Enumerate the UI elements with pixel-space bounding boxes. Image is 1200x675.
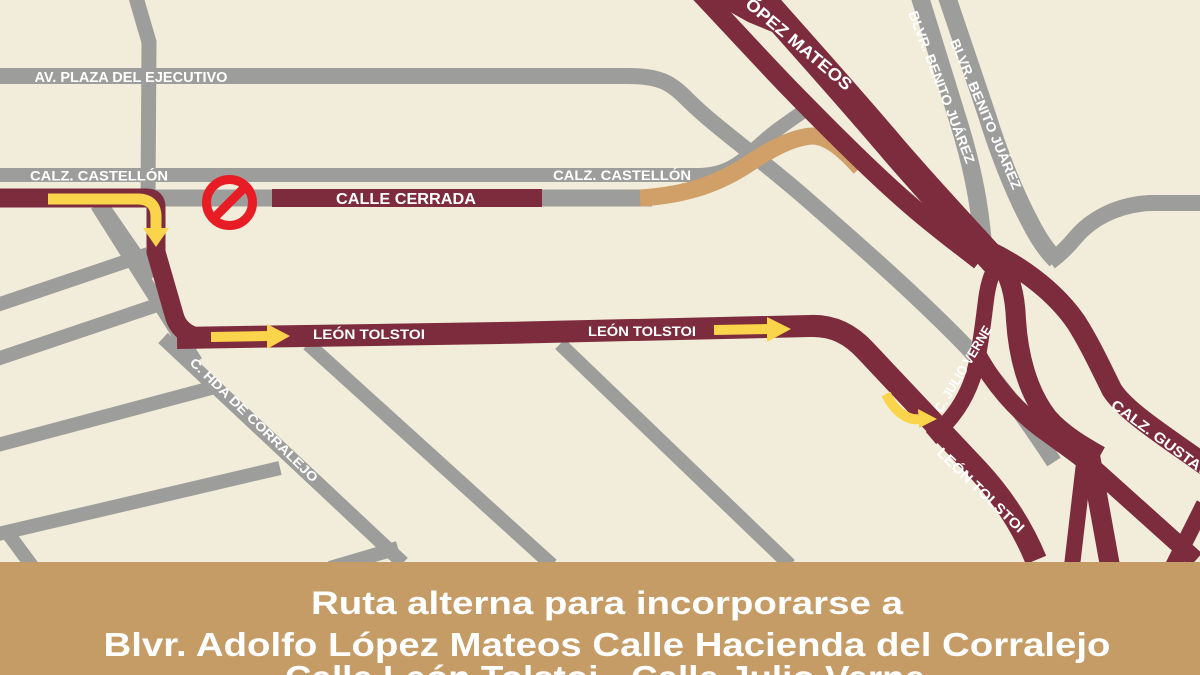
svg-text:Ruta alterna para incorporarse: Ruta alterna para incorporarse a	[311, 585, 904, 621]
svg-text:Calle León Tolstoi - Calle Jul: Calle León Tolstoi - Calle Julio Verne	[285, 660, 925, 675]
svg-text:AV. PLAZA DEL EJECUTIVO: AV. PLAZA DEL EJECUTIVO	[35, 70, 228, 86]
svg-text:LEÓN TOLSTOI: LEÓN TOLSTOI	[313, 325, 425, 342]
svg-text:CALLE CERRADA: CALLE CERRADA	[336, 191, 476, 208]
svg-text:LEÓN TOLSTOI: LEÓN TOLSTOI	[588, 322, 696, 339]
svg-text:Blvr. Adolfo López Mateos Call: Blvr. Adolfo López Mateos Calle Hacienda…	[104, 627, 1111, 664]
svg-text:CALZ. CASTELLÓN: CALZ. CASTELLÓN	[553, 166, 691, 183]
svg-text:CALZ. CASTELLÓN: CALZ. CASTELLÓN	[30, 167, 168, 184]
